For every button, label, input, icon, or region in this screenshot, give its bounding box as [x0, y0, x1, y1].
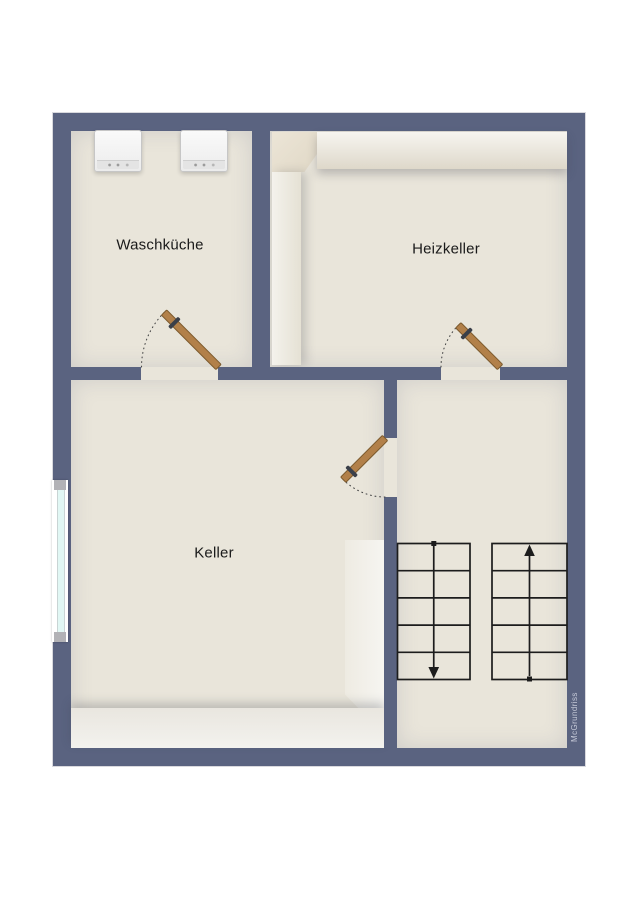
stair-hall [397, 380, 567, 748]
room-keller [71, 380, 384, 748]
page: Waschküche Heizkeller Keller McGrundriss [0, 0, 636, 900]
machine-control-panel [183, 160, 225, 169]
counter-top-wall [317, 132, 567, 169]
workbench-right [345, 540, 384, 708]
watermark: McGrundriss [570, 694, 584, 742]
interior-wall [500, 367, 567, 380]
window-sill [54, 632, 66, 642]
interior-wall [252, 131, 270, 380]
room-label-waschkueche: Waschküche [116, 237, 203, 254]
window-sill [54, 480, 66, 490]
interior-wall [71, 367, 141, 380]
window [52, 480, 68, 642]
interior-wall [384, 497, 397, 748]
window-glass [57, 490, 65, 632]
machine-control-panel [97, 160, 139, 169]
washing-machine-icon [94, 130, 142, 172]
room-label-keller: Keller [194, 545, 234, 562]
interior-wall [218, 367, 441, 380]
counter-left-wall [272, 172, 301, 365]
interior-wall [384, 380, 397, 438]
washing-machine-icon [180, 130, 228, 172]
workbench-bottom [71, 708, 384, 748]
room-label-heizkeller: Heizkeller [412, 241, 480, 258]
